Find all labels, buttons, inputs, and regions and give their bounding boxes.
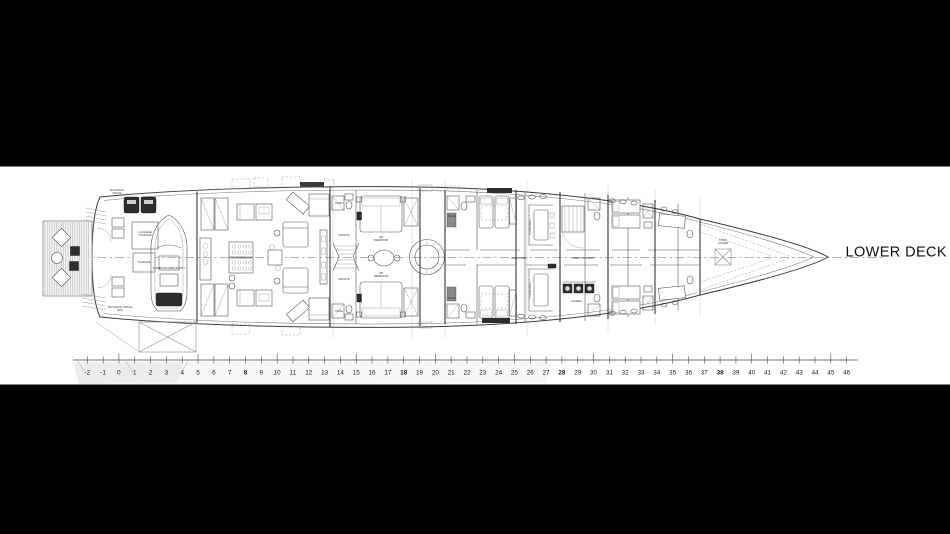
frame-number-27: 27 xyxy=(543,370,551,377)
deck-title: LOWER DECK xyxy=(846,245,948,261)
frame-number-0: 0 xyxy=(117,370,121,377)
frame-number-44: 44 xyxy=(812,370,820,377)
vip-bed-icon xyxy=(357,282,406,318)
plan-label-laundry: LAUNDRY xyxy=(571,300,583,303)
frame-number-32: 32 xyxy=(622,370,630,377)
frame-number-43: 43 xyxy=(796,370,804,377)
vip-bed-icon xyxy=(357,196,406,232)
frame-number-13: 13 xyxy=(321,370,329,377)
frame-number-6: 6 xyxy=(212,370,216,377)
letterboxed-sheet: -2-1012345678910111213141516171819202122… xyxy=(0,0,950,534)
sofa-icon xyxy=(309,194,329,216)
frame-number-2: 2 xyxy=(149,370,153,377)
frame-number-15: 15 xyxy=(353,370,361,377)
plan-label-crew-corridor: CREW CORRIDOR xyxy=(572,257,594,260)
plan-label-crew-cabin: CREW CABIN xyxy=(511,257,527,260)
frame-number-24: 24 xyxy=(495,370,503,377)
frame-number-1: 1 xyxy=(133,370,137,377)
deck-stool-icon xyxy=(70,262,79,271)
plan-label-ensuite-bottom: ENSUITE xyxy=(339,278,350,281)
plan-label-luggage-storage: LUGGAGESTORAGE xyxy=(138,230,151,237)
swim-platform xyxy=(43,221,92,296)
table-icon xyxy=(374,250,394,266)
frame-number-33: 33 xyxy=(637,370,645,377)
deck-stool-icon xyxy=(71,247,80,256)
frame-number-8: 8 xyxy=(244,370,248,377)
frame-number-11: 11 xyxy=(290,370,297,377)
frame-scale-numbers: -2-1012345678910111213141516171819202122… xyxy=(84,370,850,377)
frame-number-22: 22 xyxy=(463,370,471,377)
frame-number--1: -1 xyxy=(100,370,106,377)
plan-label-crew-mess-top: CREW MESS xyxy=(529,219,532,235)
plan-label-boiler-bottom: BOILER xyxy=(448,298,457,300)
frame-number-9: 9 xyxy=(260,370,264,377)
frame-number-31: 31 xyxy=(606,370,614,377)
frame-number-20: 20 xyxy=(432,370,440,377)
frame-number-46: 46 xyxy=(843,370,851,377)
plan-label-tender: TENDER W/ CREW SUPPLY xyxy=(153,267,186,270)
frame-number-16: 16 xyxy=(369,370,377,377)
frame-number-23: 23 xyxy=(479,370,487,377)
frame-number-5: 5 xyxy=(196,370,200,377)
frame-number-14: 14 xyxy=(337,370,345,377)
plan-label-towel-bottom: TOWEL xyxy=(335,310,344,313)
frame-number-30: 30 xyxy=(590,370,598,377)
frame-number-17: 17 xyxy=(384,370,392,377)
deck-plan-drawing: -2-1012345678910111213141516171819202122… xyxy=(0,0,950,534)
frame-number-18: 18 xyxy=(400,370,408,377)
frame-number-26: 26 xyxy=(527,370,535,377)
plan-label-towel-top: TOWEL xyxy=(335,202,344,205)
frame-number-7: 7 xyxy=(228,370,232,377)
frame-number-4: 4 xyxy=(180,370,184,377)
frame-number-42: 42 xyxy=(780,370,788,377)
frame-number-10: 10 xyxy=(274,370,282,377)
frame-number-39: 39 xyxy=(732,370,740,377)
frame-number-12: 12 xyxy=(305,370,313,377)
plan-label-chain-locker: CHAINLOCKER xyxy=(718,239,728,245)
frame-number-29: 29 xyxy=(574,370,582,377)
frame-number-25: 25 xyxy=(511,370,519,377)
frame-number-40: 40 xyxy=(748,370,756,377)
frame-number-45: 45 xyxy=(827,370,835,377)
frame-number-36: 36 xyxy=(685,370,693,377)
frame-number-34: 34 xyxy=(653,370,661,377)
plan-label-crew-mess-bottom: CREW MESS xyxy=(529,282,532,298)
frame-number-37: 37 xyxy=(701,370,709,377)
plan-label-storage: STORAGE xyxy=(137,260,150,264)
frame-number-35: 35 xyxy=(669,370,677,377)
side-table-icon xyxy=(268,250,282,265)
sofa-icon xyxy=(309,298,329,320)
frame-number-21: 21 xyxy=(448,370,456,377)
plan-label-boiler-top: BOILER xyxy=(448,216,457,218)
frame-number-19: 19 xyxy=(416,370,424,377)
frame-number-28: 28 xyxy=(558,370,566,377)
frame-number-38: 38 xyxy=(717,370,725,377)
frame-number--2: -2 xyxy=(84,370,90,377)
frame-number-3: 3 xyxy=(165,370,169,377)
plan-label-ensuite-top: ENSUITE xyxy=(339,234,350,237)
frame-number-41: 41 xyxy=(764,370,772,377)
deck-table-icon xyxy=(52,253,63,264)
